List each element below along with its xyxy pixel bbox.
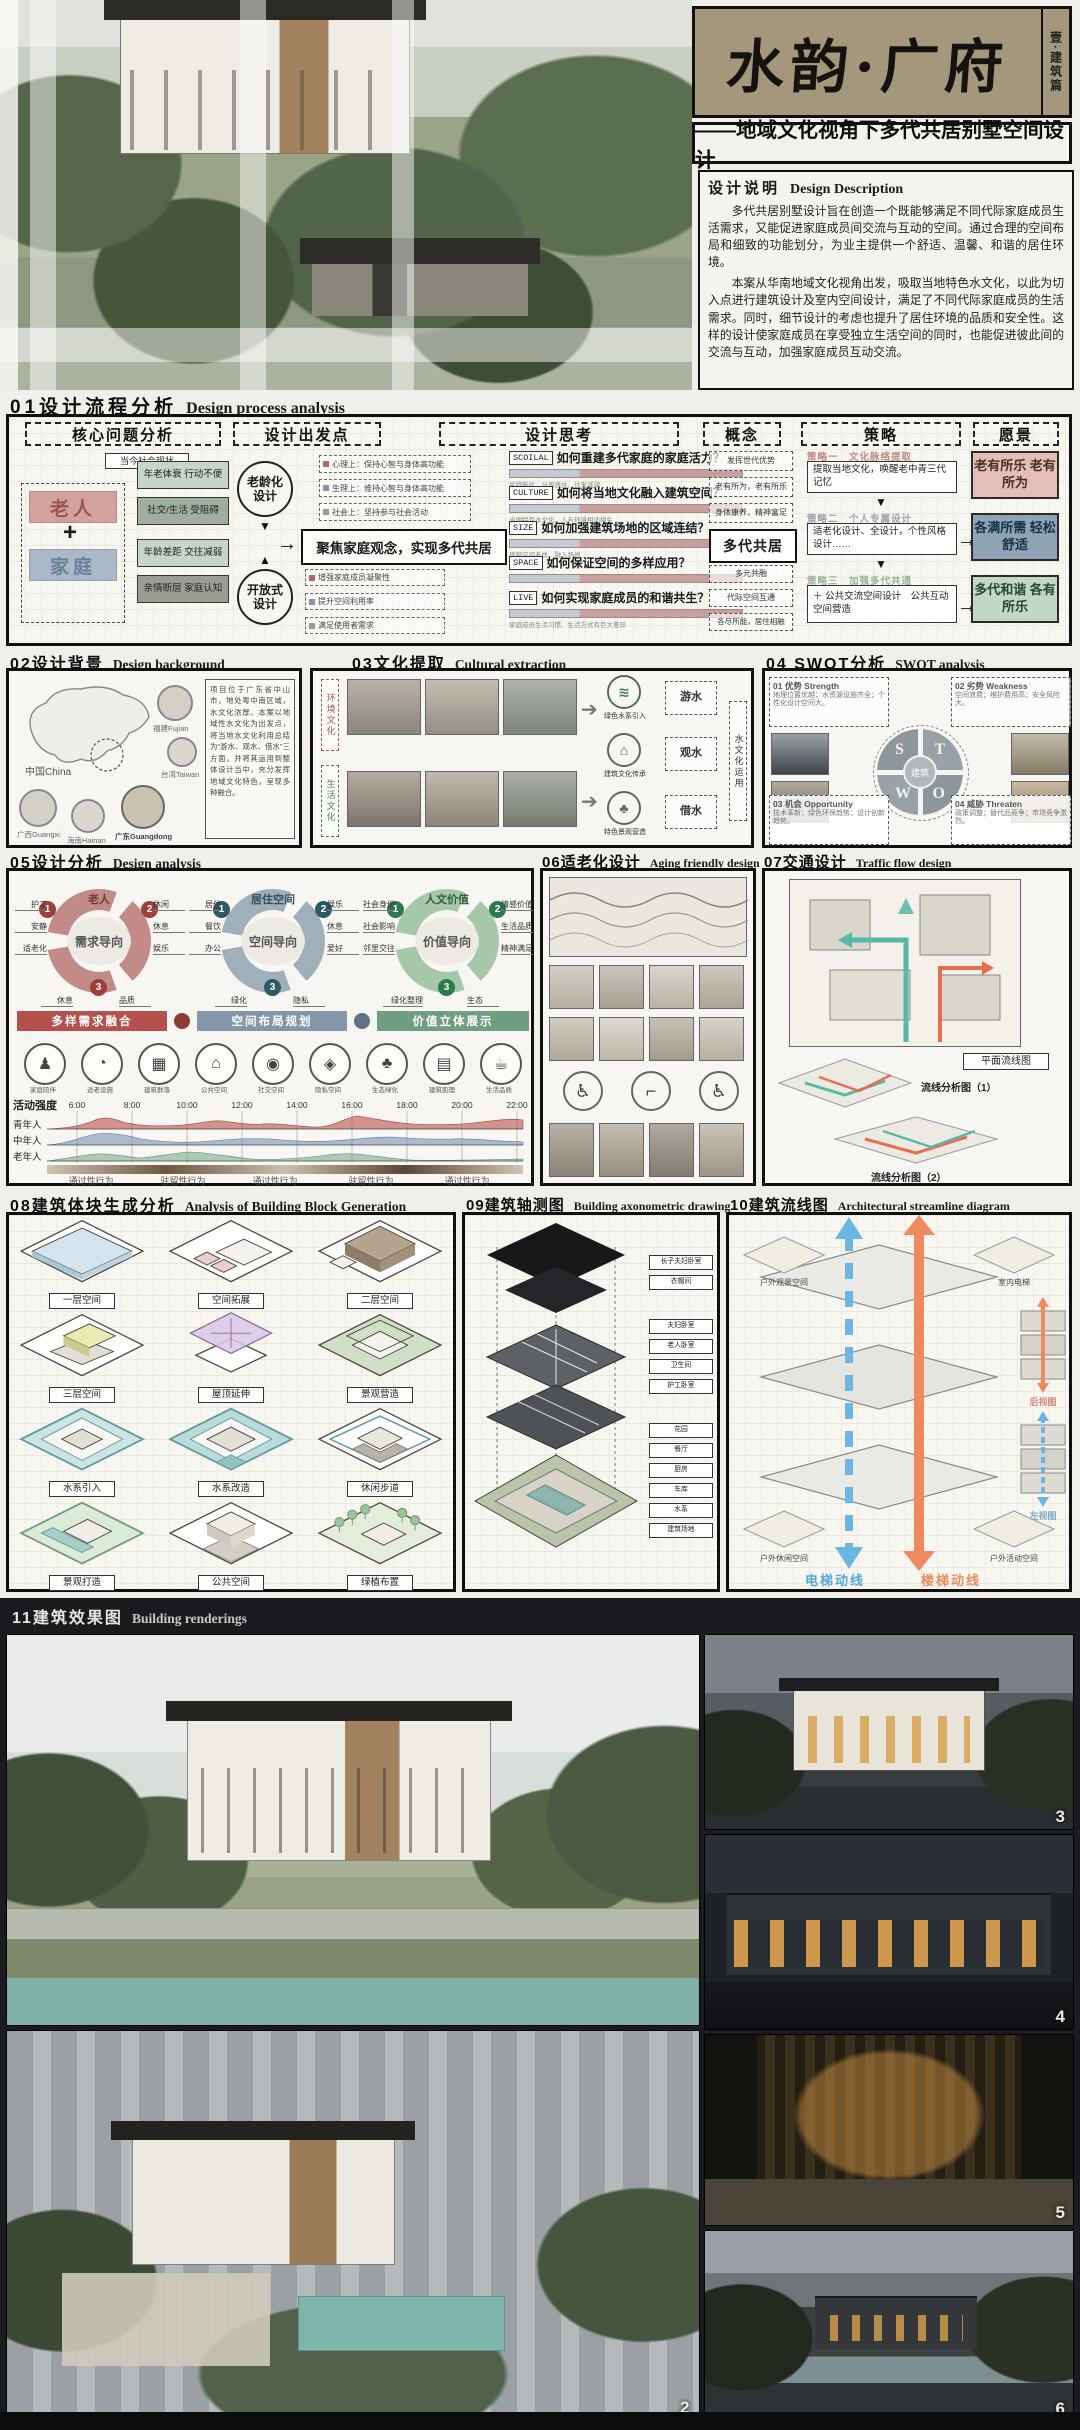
question-tag: SCOILAL [509,451,553,465]
exploded-axonometric [467,1217,645,1587]
swot-title: 02 劣势 Weakness [955,681,1028,692]
concept-item: 代际空间互通 [709,589,793,607]
ring-center: 需求导向 [67,917,131,965]
culture-photo [425,771,499,827]
region-label: 海南Hainan [67,835,106,846]
render-number: 4 [1056,2007,1065,2027]
vision-box: 老有所乐 老有所为 [971,451,1059,499]
region-label: 广东Guangdong [115,831,172,842]
bottom-bar [0,2412,1080,2430]
plan-flow-diagram [789,879,1021,1047]
axon-label: 建筑场地 [649,1523,713,1538]
poster: 水韵·广府 壹·建筑篇 ——地域文化视角下多代共居别墅空间设计 设计说明 Des… [0,0,1080,2430]
chart-ylabel: 活动强度 [13,1098,58,1112]
strategy-box: 提取当地文化，唤醒老中青三代记忆 [807,461,957,493]
arrow-up-icon: ▲ [259,553,271,567]
rendering-2-aerial-courtyard [6,2030,700,2422]
ring-tag: 安静 [15,921,47,933]
region-circle [71,799,105,833]
swot-items: 空间浪费；维护费用高；安全风险大。 [955,692,1067,710]
ring-tag: 餐饮 [189,921,221,933]
ring-badge: 3 [90,979,107,996]
aging-photo [599,1123,644,1177]
bullet-icon [323,485,329,491]
ring-tag: 邻里交往 [363,943,395,955]
gain-item: 满足使用者需求 [305,617,445,634]
poster-subtitle: ——地域文化视角下多代共居别墅空间设计 [695,113,1069,173]
water-key-box: 观水 [665,737,717,771]
aging-sketch [699,965,744,1009]
region-label: 广西Guangxi [17,829,60,840]
cane-icon: ⌐ [631,1071,671,1111]
arrow-down-icon: ▼ [875,557,887,571]
desc-heading-en: Design Description [790,182,903,198]
svg-text:青年人: 青年人 [13,1119,42,1131]
view-label: 左视图 [1028,1510,1056,1521]
plan-flow-label: 平面流线图 [963,1053,1049,1070]
start-item: 生理上：维持心智与身体高功能 [319,479,471,497]
swot-title: 04 威胁 Threaten [955,799,1022,810]
svg-text:16:00: 16:00 [341,1100,363,1110]
region-circle [157,685,193,721]
swot-center: 建筑 [903,755,937,789]
block-label: 屋顶延伸 [198,1387,264,1403]
render-number: 5 [1056,2203,1065,2223]
svg-text:12:00: 12:00 [231,1100,253,1110]
ring-tag: 娱乐 [153,943,185,955]
culture-tag: 环境文化 [321,679,339,751]
garden-wall [7,1908,699,1939]
question-text: 如何实现家庭成员的和谐共生？ [541,591,709,605]
flow-header-core: 核心问题分析 [25,422,221,446]
issue-box: 社交/生活 受阻碍 [137,497,229,525]
ring-tag: 休息 [327,921,359,933]
concept-item: 各尽所能，居住相融 [709,613,793,631]
behavior-gradient-bar [47,1165,523,1174]
block-cell: 景观打造 [9,1499,155,1591]
ring-tag: 精神满足 [501,943,533,955]
theme-bar-blue: 空间布局规划 [197,1011,347,1031]
bar-connector [171,1010,193,1032]
poster-title: 水韵·广府 [691,9,1044,115]
question-text: 如何将当地文化融入建筑空间？ [557,486,725,500]
ring-tag: 品质 [119,995,151,1007]
family-box: 家庭 [29,549,117,581]
aging-sketch [649,965,694,1009]
design-analysis-panel: 老人 需求导向 1 2 3 护工 安静 适老化 休闲 休息 娱乐 休息 品质 居… [6,868,534,1186]
villa-windows [201,1768,478,1854]
theme-bar-green: 价值立体展示 [377,1011,529,1031]
water-use-label: 特色景观营造 [595,827,655,837]
block-label: 三层空间 [49,1387,115,1403]
block-cell: 空间拓展 [158,1217,304,1309]
aging-sketch [599,1017,644,1061]
desc-heading-zh: 设计说明 [708,177,780,198]
walkway-floor [705,2179,1073,2225]
theme-bar-red: 多样需求融合 [17,1011,167,1031]
rendering-3-villa-dusk: 3 [704,1634,1074,1830]
ring-title: 人文价值 [395,891,499,907]
ring-tag: 绿化整理 [383,995,423,1007]
start-item: 心理上：保持心智与身体高功能 [319,455,471,473]
bar-connector [351,1010,373,1032]
ring-tag: 社会身份 [363,899,395,911]
swot-photo [771,733,829,775]
svg-text:14:00: 14:00 [286,1100,308,1110]
question-tag: CULTURE [509,486,553,500]
aging-wave-diagram [549,877,747,957]
rear-view-elevation [1021,1297,1065,1393]
swot-strength-box: 01 优势 Strength 地理位置优越；水资源设施齐全；个性化设计空间大。 [769,677,889,727]
hero-gate-posts [312,264,528,316]
culture-photo [425,679,499,735]
water-use-icon: ♣ [607,791,641,825]
svg-text:通过性行为: 通过性行为 [252,1175,297,1186]
section-11-header: 11建筑效果图 Building renderings [12,1604,247,1628]
desc-paragraph-2: 本案从华南地域文化视角出发，吸取当地特色水文化，以此为切入点进行建筑设计及室内空… [708,275,1064,360]
swot-items: 地理位置优越；水资源设施齐全；个性化设计空间大。 [773,692,885,710]
ring-center: 空间导向 [241,917,305,965]
culture-photo [347,771,421,827]
axon-label: 夫妇卧室 [649,1319,713,1334]
block-label: 二层空间 [347,1293,413,1309]
culture-photo [503,679,577,735]
chart-time-ticks: 6:00 8:00 10:00 12:00 14:00 16:00 18:00 … [69,1100,528,1110]
aging-sketch [549,965,594,1009]
block-cell: 水系引入 [9,1405,155,1497]
behavior-labels: 通过性行为 驻留性行为 通过性行为 驻留性行为 通过性行为 [68,1175,489,1186]
question-bar [509,504,743,513]
render-number: 3 [1056,1807,1065,1827]
ground-reflection [705,1982,1073,2029]
block-cell: 绿植布置 [307,1499,453,1591]
culture-photo [347,679,421,735]
focus-statement-box: 聚焦家庭观念，实现多代共居 [301,529,507,565]
cultural-extraction-panel: 环境文化 生活文化 ➔ ➔ ≋ 绿色水系引入 游水 ⌂ 建筑文化传承 观水 ♣ … [310,668,754,848]
area-middle [47,1133,523,1145]
activity-intensity-chart: 活动强度 6:00 8:00 10:00 12:00 14:00 16:00 1… [11,1097,531,1187]
strategy-box: ＋ 公共交流空间设计 公共互动空间营造 [807,585,957,623]
ring-tag: 休息 [153,921,185,933]
svg-text:驻留性行为: 驻留性行为 [348,1175,393,1186]
rendering-1-villa-day [6,1634,700,2026]
flow-header-vision: 愿景 [973,422,1059,446]
ring-center: 价值导向 [415,917,479,965]
wave-lines [550,878,748,958]
question-text: 如何保证空间的多样应用？ [547,556,691,570]
svg-text:22:00: 22:00 [506,1100,528,1110]
warm-windows [734,1920,1043,1967]
warm-windows [830,2315,962,2342]
villa-roof [779,1678,1000,1692]
subtitle-bar: ——地域文化视角下多代共居别墅空间设计 [692,122,1072,164]
location-note-box: 项目位于广东省中山市，地处粤中南区域，水文化浓厚。本案以地域性水文化为出发点，将… [205,679,295,839]
wheelchair-icon: ♿ [699,1071,739,1111]
block-cell: 三层空间 [9,1311,155,1403]
chart-row-labels: 青年人 中年人 老年人 [13,1119,42,1163]
collage-stripe [0,328,692,362]
courtyard-pool [298,2296,506,2351]
swot-items: 政策调整；替代品竞争；市场竞争激烈。 [955,810,1067,828]
block-label: 水系引入 [49,1481,115,1497]
issue-box: 年老体衰 行动不便 [137,461,229,489]
function-icons-row: ♟家庭陪伴 ◔适老设施 ▦建筑群落 ⌂公共空间 ◉社交空间 ◈隐私空间 ♣生态绿… [9,1043,537,1095]
svg-text:10:00: 10:00 [176,1100,198,1110]
people-icon: ♟ [24,1043,66,1085]
aging-photo [649,1123,694,1177]
ring-tag: 情感价值 [501,899,533,911]
swot-opportunity-box: 03 机会 Opportunity 技术革新；绿色环保趋势；设计创新趋势。 [769,795,889,845]
culture-tag: 生活文化 [321,765,339,837]
question-bar [509,469,743,478]
block-cell: 公共空间 [158,1499,304,1591]
block-cell: 二层空间 [307,1217,453,1309]
block-label: 休闲步道 [347,1481,413,1497]
question-text: 如何加强建筑场地的区域连结？ [541,521,709,535]
block-label: 公共空间 [198,1575,264,1591]
gain-item: 增强家庭成员凝聚性 [305,569,445,586]
lock-icon: ◈ [309,1043,351,1085]
block-label: 空间拓展 [198,1293,264,1309]
region-label: 中国China [25,763,71,778]
bullet-icon [323,509,329,515]
question-bar [509,539,743,548]
water-use-icon: ≋ [607,675,641,709]
ring-tag: 娱乐 [327,899,359,911]
svg-text:通过性行为: 通过性行为 [444,1175,489,1186]
design-background-panel: 中国China 福建Fujian 台湾Taiwan 广西Guangxi 海南Ha… [6,668,302,848]
question-tag: SIZE [509,521,537,535]
axon-label: 水系 [649,1503,713,1518]
water-key-box: 游水 [665,681,717,715]
ring-tag: 居住 [189,899,221,911]
block-label: 水系改造 [198,1481,264,1497]
swot-panel: 01 优势 Strength 地理位置优越；水资源设施齐全；个性化设计空间大。 … [762,668,1072,848]
region-label: 福建Fujian [153,723,188,734]
desc-paragraph-1: 多代共居别墅设计旨在创造一个既能够满足不同代际家庭成员生活需求，又能促进家庭成员… [708,203,1064,271]
svg-text:18:00: 18:00 [396,1100,418,1110]
issue-box: 亲情断层 家庭认知 [137,575,229,603]
block-label: 景观营造 [347,1387,413,1403]
bullet-icon [309,623,315,629]
area-elder [47,1152,523,1161]
swot-threat-box: 04 威胁 Threaten 政策调整；替代品竞争；市场竞争激烈。 [951,795,1071,845]
block-label: 一层空间 [49,1293,115,1309]
water-key-box: 借水 [665,795,717,829]
aging-sketch [649,1017,694,1061]
swot-letter: S [895,741,904,759]
aging-sketch [699,1017,744,1061]
water-apply-tag: 水文化运用 [729,701,747,821]
facility-icon: ◔ [81,1043,123,1085]
swot-photo [1011,733,1069,775]
view-label: 后视图 [1029,1396,1056,1407]
iso-flow-2-label: 流线分析图（2） [871,1169,947,1184]
ring-tag: 护工 [15,899,47,911]
villa-roof [111,2121,415,2141]
aging-sketch [549,1017,594,1061]
villa-body [132,2132,395,2265]
ring-title: 老人 [47,891,151,907]
plan-flow-svg [790,880,1022,1048]
arrow-down-icon: ▼ [875,495,887,509]
streamline-svg: 户外观景空间 室内电梯 户外休闲空间 户外活动空间 后视图 [729,1215,1069,1589]
ring-tag: 适老化 [15,943,47,955]
ring-tag: 办公 [189,943,221,955]
svg-text:6:00: 6:00 [69,1100,86,1110]
arrow-right-icon: → [277,533,297,556]
question-bar [509,574,743,583]
issue-box: 年龄差距 交往减弱 [137,539,229,567]
flow-header-start: 设计出发点 [233,422,381,446]
elevator-flow-legend: 电梯动线 [805,1573,865,1588]
start-item: 社会上：坚持参与社会活动 [319,503,471,521]
region-circle [121,785,165,829]
left-view-elevation [1021,1411,1065,1507]
concept-main-box: 多代共居 [709,529,797,563]
flow-header-concept: 概念 [703,422,781,446]
concept-item: 多元共融 [709,565,793,583]
ring-tag: 隐私 [293,995,325,1007]
aging-photo [699,1123,744,1177]
edition-tag: 壹·建筑篇 [1041,9,1069,115]
social-icon: ◉ [252,1043,294,1085]
swot-letter: T [934,741,945,759]
courtyard-paving [62,2273,270,2367]
swot-letter: O [933,785,945,803]
ring-diagram-value: 人文价值 价值导向 1 2 3 社会身份 社会影响 邻里交往 情感价值 生活品质… [363,875,531,1009]
iso-flow-2 [831,1113,1001,1167]
block-cell: 一层空间 [9,1217,155,1309]
axon-label: 老人卧室 [649,1339,713,1354]
ring-tag: 休息 [41,995,73,1007]
concept-item: 老有所为，老有所乐 [709,477,793,497]
block-generation-panel: 一层空间 空间拓展 二层空间 三层空间 屋顶延伸 景观营造 水系引入 [6,1212,456,1592]
rendering-6-dusk-courtyard: 6 [704,2230,1074,2422]
hero-photo-collage [0,0,692,390]
rendering-5-louver-walkway: 5 [704,2034,1074,2226]
tree-icon: ♣ [366,1043,408,1085]
ring-diagram-space: 居住空间 空间导向 1 2 3 居住 餐饮 办公 娱乐 休息 爱好 绿化 隐私 [189,875,357,1009]
strategy-box: 适老化设计、全设计，个性风格设计…… [807,523,957,555]
vision-box: 各满所需 轻松舒适 [971,513,1059,561]
svg-text:8:00: 8:00 [124,1100,141,1110]
axon-label: 长子夫妇卧室 [649,1255,713,1270]
axon-label: 餐厅 [649,1443,713,1458]
svg-text:户外观景空间: 户外观景空间 [760,1277,808,1287]
block-cell: 水系改造 [158,1405,304,1497]
region-circle [19,789,57,827]
water-use-label: 建筑文化传承 [595,769,655,779]
svg-text:20:00: 20:00 [451,1100,473,1110]
svg-text:通过性行为: 通过性行为 [68,1175,113,1186]
ring-tag: 社会影响 [363,921,395,933]
ring-tag: 生态 [467,995,499,1007]
svg-text:中年人: 中年人 [13,1135,42,1147]
block-label: 绿植布置 [347,1575,413,1591]
streamline-panel: 户外观景空间 室内电梯 户外休闲空间 户外活动空间 后视图 [726,1212,1072,1592]
svg-text:室内电梯: 室内电梯 [998,1277,1030,1287]
cup-icon: ☕ [480,1043,522,1085]
bullet-icon [309,575,315,581]
ring-diagram-elder: 老人 需求导向 1 2 3 护工 安静 适老化 休闲 休息 娱乐 休息 品质 [15,875,183,1009]
stair-flow-legend: 楼梯动线 [921,1573,981,1588]
swot-letter: W [895,785,911,803]
house-icon: ⌂ [195,1043,237,1085]
axon-label: 衣帽间 [649,1275,713,1290]
ring-title: 居住空间 [221,891,325,907]
culture-photo [503,771,577,827]
traffic-design-panel: 平面流线图 流线分析图（1） 流线分析图（2） [762,868,1072,1186]
arrow-right-icon: ➔ [581,789,598,814]
axon-label: 卫生间 [649,1359,713,1374]
ring-tag: 爱好 [327,943,359,955]
ring-badge: 3 [438,979,455,996]
aging-design-panel: ♿ ⌐ ♿ [540,868,756,1186]
warm-windows [808,1716,970,1763]
question-tag: SPACE [509,556,543,570]
axon-label: 护工卧室 [649,1379,713,1394]
block-label: 景观打造 [49,1575,115,1591]
axon-label: 花园 [649,1423,713,1438]
swot-title: 03 机会 Opportunity [773,799,853,810]
swot-items: 技术革新；绿色环保趋势；设计创新趋势。 [773,810,885,828]
svg-text:户外活动空间: 户外活动空间 [990,1553,1038,1563]
title-box: 水韵·广府 壹·建筑篇 [692,6,1072,118]
open-design-circle: 开放式设计 [237,569,293,625]
axon-label: 车库 [649,1483,713,1498]
concept-item: 发挥世代优势 [709,451,793,471]
iso-flow-1-label: 流线分析图（1） [921,1079,997,1094]
plus-sign: + [63,519,77,547]
building-icon: ▦ [138,1043,180,1085]
iso-flow-1 [775,1055,915,1111]
block-cell: 景观营造 [307,1311,453,1403]
question-tag: LIVE [509,591,537,605]
block-cell: 休闲步道 [307,1405,453,1497]
design-process-flowchart: 核心问题分析 设计出发点 设计思考 概念 策略 愿景 当今社会现状 ▼ 老人 +… [6,414,1072,646]
question-bar [509,609,743,618]
aging-photo [549,1123,594,1177]
aging-sketch [599,965,644,1009]
wheelchair-icon: ♿ [563,1071,603,1111]
hero-gate-canopy [300,238,540,264]
region-circle [167,737,197,767]
svg-text:驻留性行为: 驻留性行为 [160,1175,205,1186]
concept-item: 身体康养，精神富足 [709,503,793,523]
villa-roof [166,1701,512,1721]
ring-tag: 生活品质 [501,921,533,933]
region-label: 台湾Taiwan [161,769,199,780]
water-use-icon: ⌂ [607,733,641,767]
design-description-box: 设计说明 Design Description 多代共居别墅设计旨在创造一个既能… [698,170,1074,390]
vision-box: 多代和谐 各有所乐 [971,575,1059,623]
water-use-label: 绿色水系引入 [595,711,655,721]
svg-text:老年人: 老年人 [13,1151,42,1163]
rendering-4-night-facade: 4 [704,1834,1074,2030]
question-text: 如何重建多代家庭的家庭活力？ [557,451,725,465]
axonometric-panel: 长子夫妇卧室 衣帽间 夫妇卧室 老人卧室 卫生间 护工卧室 花园 餐厅 厨房 车… [462,1212,720,1592]
swot-title: 01 优势 Strength [773,681,839,692]
chart-gridlines [77,1111,517,1163]
bullet-icon [309,599,315,605]
gain-item: 提升空间利用率 [305,593,445,610]
ring-tag: 休闲 [153,899,185,911]
bullet-icon [323,461,329,467]
arrow-down-icon: ▼ [259,519,271,533]
axon-label: 厨房 [649,1463,713,1478]
aging-design-circle: 老龄化设计 [237,461,293,517]
